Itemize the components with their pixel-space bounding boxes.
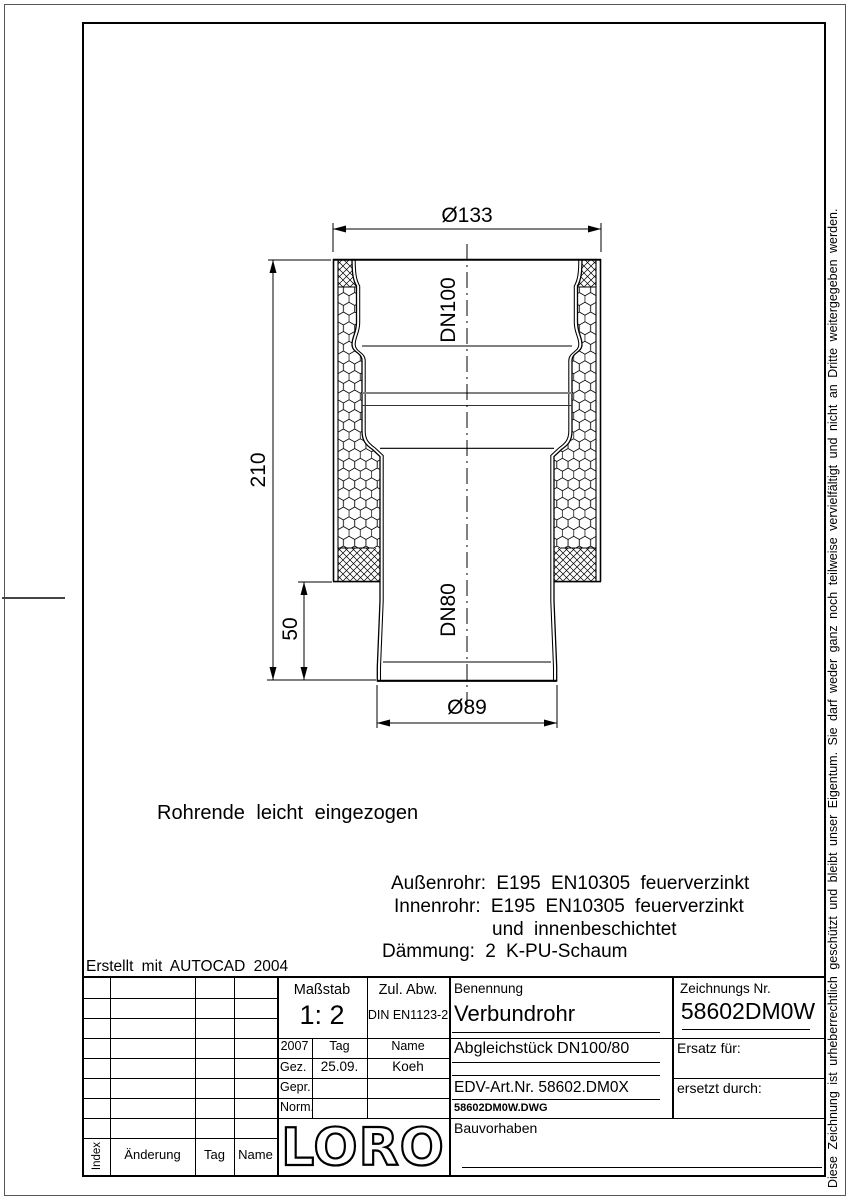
titleblock-gepr-label: Gepr. [280,1081,311,1094]
titleblock-gez-name: Koeh [367,1060,449,1074]
grid-line [84,1018,277,1019]
titleblock-masstab-value: 1: 2 [277,1001,367,1029]
underline [452,1099,660,1100]
copyright-vertical-text: Diese Zeichnung ist urheberrechtlich ges… [826,43,840,1188]
underline [452,1062,660,1063]
grid-line [234,978,235,1175]
titleblock-edv-art: EDV-Art.Nr. 58602.DM0X [454,1080,629,1096]
titleblock-gez-label: Gez. [280,1061,306,1074]
titleblock-zeichnung-label: Zeichnungs Nr. [680,982,771,996]
titleblock-ersatz-label: Ersatz für: [677,1041,741,1056]
titleblock-zul-abw-label: Zul. Abw. [367,983,449,998]
autocad-note: Erstellt mit AUTOCAD 2004 [86,959,288,975]
grid-line [110,978,111,1175]
grid-line [449,978,451,1175]
titleblock-subtitle: Abgleichstück DN100/80 [454,1041,629,1058]
titleblock-benennung-label: Benennung [454,982,523,996]
dim-label-lower-offset: 50 [280,617,302,640]
pipe-label-dn80: DN80 [438,583,460,637]
titleblock-masstab-label: Maßstab [277,983,367,998]
titleblock-zul-abw-value: DIN EN1123-2 [367,1009,449,1022]
titleblock-aenderung-label: Änderung [110,1148,195,1162]
titleblock-name-col-label: Name [234,1148,277,1162]
titleblock-bauvorhaben-label: Bauvorhaben [454,1121,537,1136]
titleblock-year: 2007 [277,1040,312,1053]
grid-line [672,1078,824,1079]
material-note-outer: Außenrohr: E195 EN10305 feuerverzinkt [391,874,749,894]
titleblock-name-label: Name [367,1040,449,1053]
title-block: Maßstab 1: 2 Zul. Abw. DIN EN1123-2 Bene… [82,976,826,1177]
titleblock-norm-label: Norm. [280,1101,314,1114]
grid-line [84,1078,449,1079]
titleblock-index-label: Index [91,1142,103,1170]
grid-line [84,998,277,999]
titleblock-dwg-file: 58602DM0W.DWG [454,1103,548,1115]
material-note-insulation: Dämmung: 2 K-PU-Schaum [382,942,627,962]
pipe-label-dn100: DN100 [438,277,460,342]
drawing-sheet: Ø133 210 50 Ø89 DN100 DN80 Rohrende leic… [0,0,850,1200]
dim-label-total-height: 210 [248,452,270,487]
titleblock-ersetzt-label: ersetzt durch: [677,1081,762,1096]
underline [682,1029,810,1030]
underline [462,1167,822,1168]
grid-line [195,978,196,1175]
titleblock-tag-col-label: Tag [195,1148,234,1162]
grid-line [84,1098,449,1099]
dim-label-outer-diameter: Ø133 [441,205,492,227]
underline [452,1032,660,1033]
dim-label-lower-diameter: Ø89 [447,697,487,719]
loro-logo: LORO [279,1120,447,1174]
material-note-inner: Innenrohr: E195 EN10305 feuerverzinkt [394,897,744,917]
pipe-left-half [330,255,390,681]
titleblock-zeichnung-value: 58602DM0W [672,999,824,1023]
titleblock-benennung-value: Verbundrohr [454,1002,575,1025]
titleblock-gez-date: 25.09. [312,1060,367,1074]
titleblock-tag-label: Tag [312,1040,367,1053]
note-pipe-end: Rohrende leicht eingezogen [157,803,418,824]
loro-logo-text: LORO [281,1120,445,1174]
underline [452,1075,660,1076]
material-note-coating: und innenbeschichtet [492,920,677,940]
grid-line [84,1138,277,1139]
pipe-drawing-svg [0,0,850,760]
